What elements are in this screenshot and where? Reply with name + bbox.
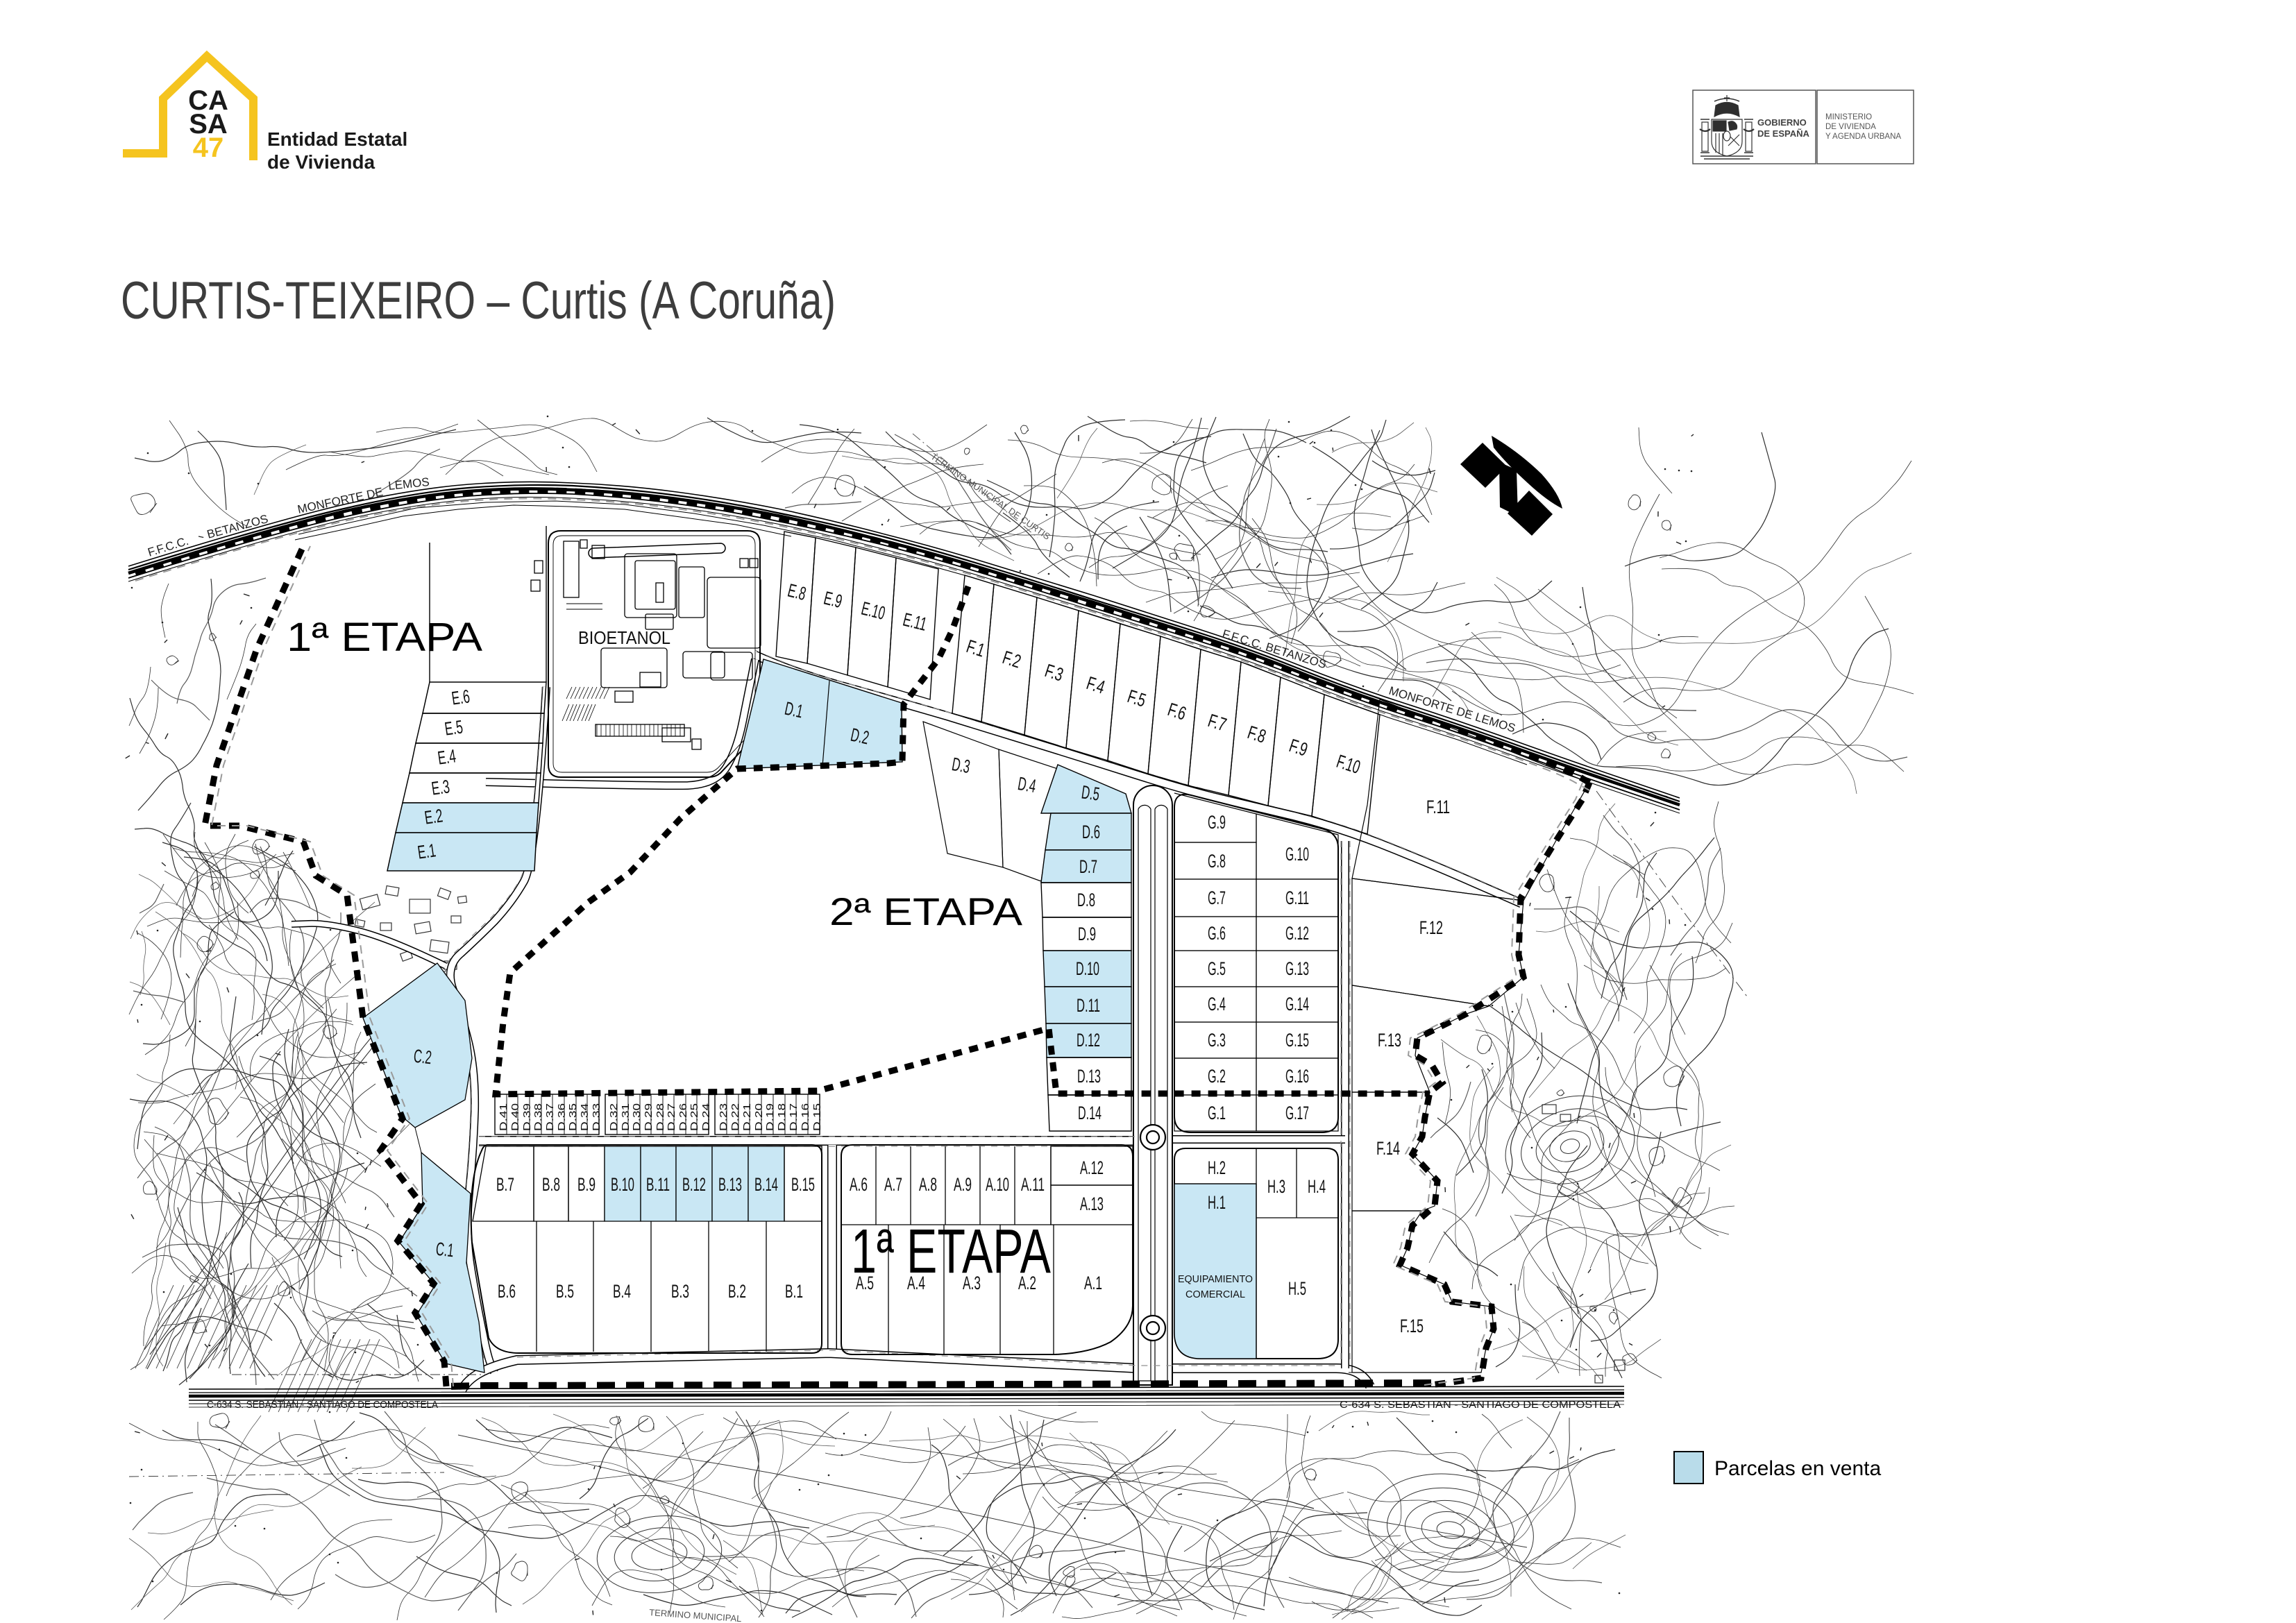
svg-text:D.14: D.14 bbox=[1078, 1103, 1101, 1123]
svg-text:B.13: B.13 bbox=[718, 1174, 742, 1195]
svg-text:DE ESPAÑA: DE ESPAÑA bbox=[1757, 128, 1809, 139]
svg-text:D.31: D.31 bbox=[620, 1103, 632, 1131]
svg-text:C-634 S. SEBASTIAN - SANTIA: C-634 S. SEBASTIAN - SANTIAGO DE COMPOST… bbox=[207, 1399, 438, 1411]
svg-text:B.7: B.7 bbox=[496, 1174, 514, 1195]
svg-text:G.3: G.3 bbox=[1208, 1030, 1226, 1051]
svg-text:D.41: D.41 bbox=[498, 1103, 509, 1131]
svg-text:D.20: D.20 bbox=[753, 1103, 765, 1131]
svg-text:H.2: H.2 bbox=[1208, 1157, 1226, 1178]
svg-text:1ª ETAPA: 1ª ETAPA bbox=[287, 615, 482, 660]
svg-text:G.7: G.7 bbox=[1208, 887, 1226, 908]
svg-text:G.8: G.8 bbox=[1208, 851, 1226, 872]
svg-text:A.8: A.8 bbox=[919, 1174, 937, 1195]
svg-text:D.35: D.35 bbox=[567, 1103, 579, 1131]
svg-text:D.36: D.36 bbox=[556, 1103, 568, 1131]
svg-text:B.2: B.2 bbox=[728, 1281, 746, 1302]
svg-text:de Vivienda: de Vivienda bbox=[267, 151, 375, 173]
svg-text:G.12: G.12 bbox=[1285, 923, 1309, 944]
svg-text:B.10: B.10 bbox=[611, 1174, 634, 1195]
svg-text:G.5: G.5 bbox=[1208, 958, 1226, 979]
svg-text:BIOETANOL: BIOETANOL bbox=[578, 627, 670, 648]
svg-text:F.15: F.15 bbox=[1400, 1316, 1424, 1336]
svg-text:G.6: G.6 bbox=[1208, 923, 1226, 944]
svg-text:G.13: G.13 bbox=[1285, 958, 1309, 979]
svg-text:D.28: D.28 bbox=[655, 1103, 666, 1131]
svg-text:D.3: D.3 bbox=[950, 754, 972, 777]
svg-text:H.3: H.3 bbox=[1267, 1176, 1285, 1197]
svg-text:D.9: D.9 bbox=[1078, 924, 1096, 944]
svg-text:G.1: G.1 bbox=[1208, 1103, 1226, 1123]
svg-text:D.15: D.15 bbox=[811, 1103, 823, 1131]
svg-text:1ª ETAPA: 1ª ETAPA bbox=[851, 1217, 1051, 1286]
svg-text:2ª ETAPA: 2ª ETAPA bbox=[829, 890, 1023, 933]
svg-text:B.3: B.3 bbox=[671, 1281, 689, 1302]
svg-text:A.7: A.7 bbox=[884, 1174, 902, 1195]
svg-text:D.30: D.30 bbox=[631, 1103, 643, 1131]
svg-text:EQUIPAMIENTO: EQUIPAMIENTO bbox=[1178, 1273, 1253, 1285]
svg-text:DE VIVIENDA: DE VIVIENDA bbox=[1825, 123, 1876, 131]
svg-text:Y AGENDA URBANA: Y AGENDA URBANA bbox=[1825, 133, 1901, 141]
svg-text:D.18: D.18 bbox=[776, 1103, 788, 1131]
svg-text:F.11: F.11 bbox=[1426, 797, 1450, 817]
svg-text:C.1: C.1 bbox=[434, 1239, 455, 1261]
svg-text:A.12: A.12 bbox=[1080, 1157, 1104, 1178]
svg-text:C.2: C.2 bbox=[412, 1046, 432, 1069]
svg-text:D.4: D.4 bbox=[1016, 773, 1038, 797]
svg-text:H.5: H.5 bbox=[1288, 1278, 1306, 1299]
svg-text:D.12: D.12 bbox=[1077, 1030, 1100, 1051]
svg-text:B.12: B.12 bbox=[682, 1174, 706, 1195]
svg-text:GOBIERNO: GOBIERNO bbox=[1757, 117, 1807, 128]
svg-text:D.24: D.24 bbox=[700, 1103, 712, 1131]
svg-text:A.11: A.11 bbox=[1021, 1174, 1045, 1195]
svg-text:D.17: D.17 bbox=[788, 1103, 800, 1131]
svg-text:E.5: E.5 bbox=[444, 716, 464, 739]
svg-text:D.6: D.6 bbox=[1082, 822, 1100, 842]
svg-text:E.4: E.4 bbox=[437, 745, 457, 768]
svg-text:G.17: G.17 bbox=[1285, 1103, 1309, 1123]
svg-text:D.7: D.7 bbox=[1079, 856, 1097, 877]
svg-text:Parcelas en venta: Parcelas en venta bbox=[1714, 1457, 1881, 1480]
svg-text:C-634 S. SEBASTIAN - SANTIA: C-634 S. SEBASTIAN - SANTIAGO DE COMPOST… bbox=[1340, 1399, 1621, 1411]
svg-text:D.29: D.29 bbox=[643, 1103, 655, 1131]
svg-text:D.23: D.23 bbox=[718, 1103, 729, 1131]
svg-text:B.8: B.8 bbox=[542, 1174, 560, 1195]
svg-text:D.34: D.34 bbox=[579, 1103, 591, 1131]
svg-text:D.8: D.8 bbox=[1077, 890, 1095, 910]
svg-text:B.15: B.15 bbox=[791, 1174, 815, 1195]
svg-text:D.26: D.26 bbox=[677, 1103, 689, 1131]
svg-text:D.13: D.13 bbox=[1077, 1066, 1101, 1087]
svg-text:D.21: D.21 bbox=[741, 1103, 753, 1131]
svg-text:G.14: G.14 bbox=[1285, 994, 1309, 1014]
svg-text:G.11: G.11 bbox=[1285, 887, 1309, 908]
svg-text:B.6: B.6 bbox=[498, 1281, 516, 1302]
svg-text:A.10: A.10 bbox=[986, 1174, 1009, 1195]
svg-text:G.9: G.9 bbox=[1208, 812, 1226, 833]
svg-text:B.4: B.4 bbox=[613, 1281, 631, 1302]
svg-text:A.9: A.9 bbox=[954, 1174, 972, 1195]
svg-text:E.1: E.1 bbox=[416, 840, 437, 863]
svg-text:G.2: G.2 bbox=[1208, 1066, 1226, 1087]
svg-text:MINISTERIO: MINISTERIO bbox=[1825, 113, 1872, 121]
svg-text:F.13: F.13 bbox=[1378, 1030, 1401, 1051]
svg-text:B.1: B.1 bbox=[785, 1281, 803, 1302]
svg-text:F.12: F.12 bbox=[1419, 917, 1443, 938]
svg-text:A.1: A.1 bbox=[1084, 1273, 1102, 1293]
svg-text:H.4: H.4 bbox=[1308, 1176, 1326, 1197]
svg-text:B.5: B.5 bbox=[556, 1281, 574, 1302]
svg-text:D.22: D.22 bbox=[729, 1103, 741, 1131]
svg-text:E.3: E.3 bbox=[430, 776, 451, 799]
svg-text:G.4: G.4 bbox=[1208, 994, 1226, 1014]
svg-text:D.11: D.11 bbox=[1077, 995, 1100, 1016]
svg-text:E.2: E.2 bbox=[423, 805, 444, 828]
svg-text:F.14: F.14 bbox=[1376, 1138, 1400, 1159]
svg-text:D.32: D.32 bbox=[608, 1103, 620, 1131]
svg-text:Entidad Estatal: Entidad Estatal bbox=[267, 128, 407, 150]
svg-text:B.9: B.9 bbox=[577, 1174, 596, 1195]
svg-text:D.27: D.27 bbox=[666, 1103, 677, 1131]
svg-text:H.1: H.1 bbox=[1208, 1192, 1226, 1213]
svg-text:D.5: D.5 bbox=[1080, 781, 1101, 804]
svg-text:D.33: D.33 bbox=[591, 1103, 602, 1131]
svg-text:D.16: D.16 bbox=[800, 1103, 811, 1131]
svg-text:D.10: D.10 bbox=[1076, 958, 1099, 979]
svg-text:D.19: D.19 bbox=[764, 1103, 776, 1131]
svg-text:D.37: D.37 bbox=[544, 1103, 556, 1131]
svg-text:B.14: B.14 bbox=[754, 1174, 778, 1195]
svg-text:G.15: G.15 bbox=[1285, 1030, 1309, 1051]
svg-text:B.11: B.11 bbox=[646, 1174, 670, 1195]
svg-text:A.13: A.13 bbox=[1080, 1193, 1104, 1214]
svg-text:D.25: D.25 bbox=[689, 1103, 700, 1131]
svg-text:COMERCIAL: COMERCIAL bbox=[1185, 1289, 1245, 1300]
svg-text:D.40: D.40 bbox=[509, 1103, 521, 1131]
svg-text:D.38: D.38 bbox=[532, 1103, 544, 1131]
svg-text:E.6: E.6 bbox=[450, 686, 471, 708]
svg-text:D.39: D.39 bbox=[521, 1103, 533, 1131]
svg-text:G.10: G.10 bbox=[1285, 844, 1309, 865]
svg-text:A.6: A.6 bbox=[850, 1174, 868, 1195]
svg-text:G.16: G.16 bbox=[1285, 1066, 1309, 1087]
svg-text:47: 47 bbox=[193, 133, 224, 163]
svg-text:CURTIS-TEIXEIRO – Curtis (A Co: CURTIS-TEIXEIRO – Curtis (A Coruña) bbox=[121, 271, 836, 330]
